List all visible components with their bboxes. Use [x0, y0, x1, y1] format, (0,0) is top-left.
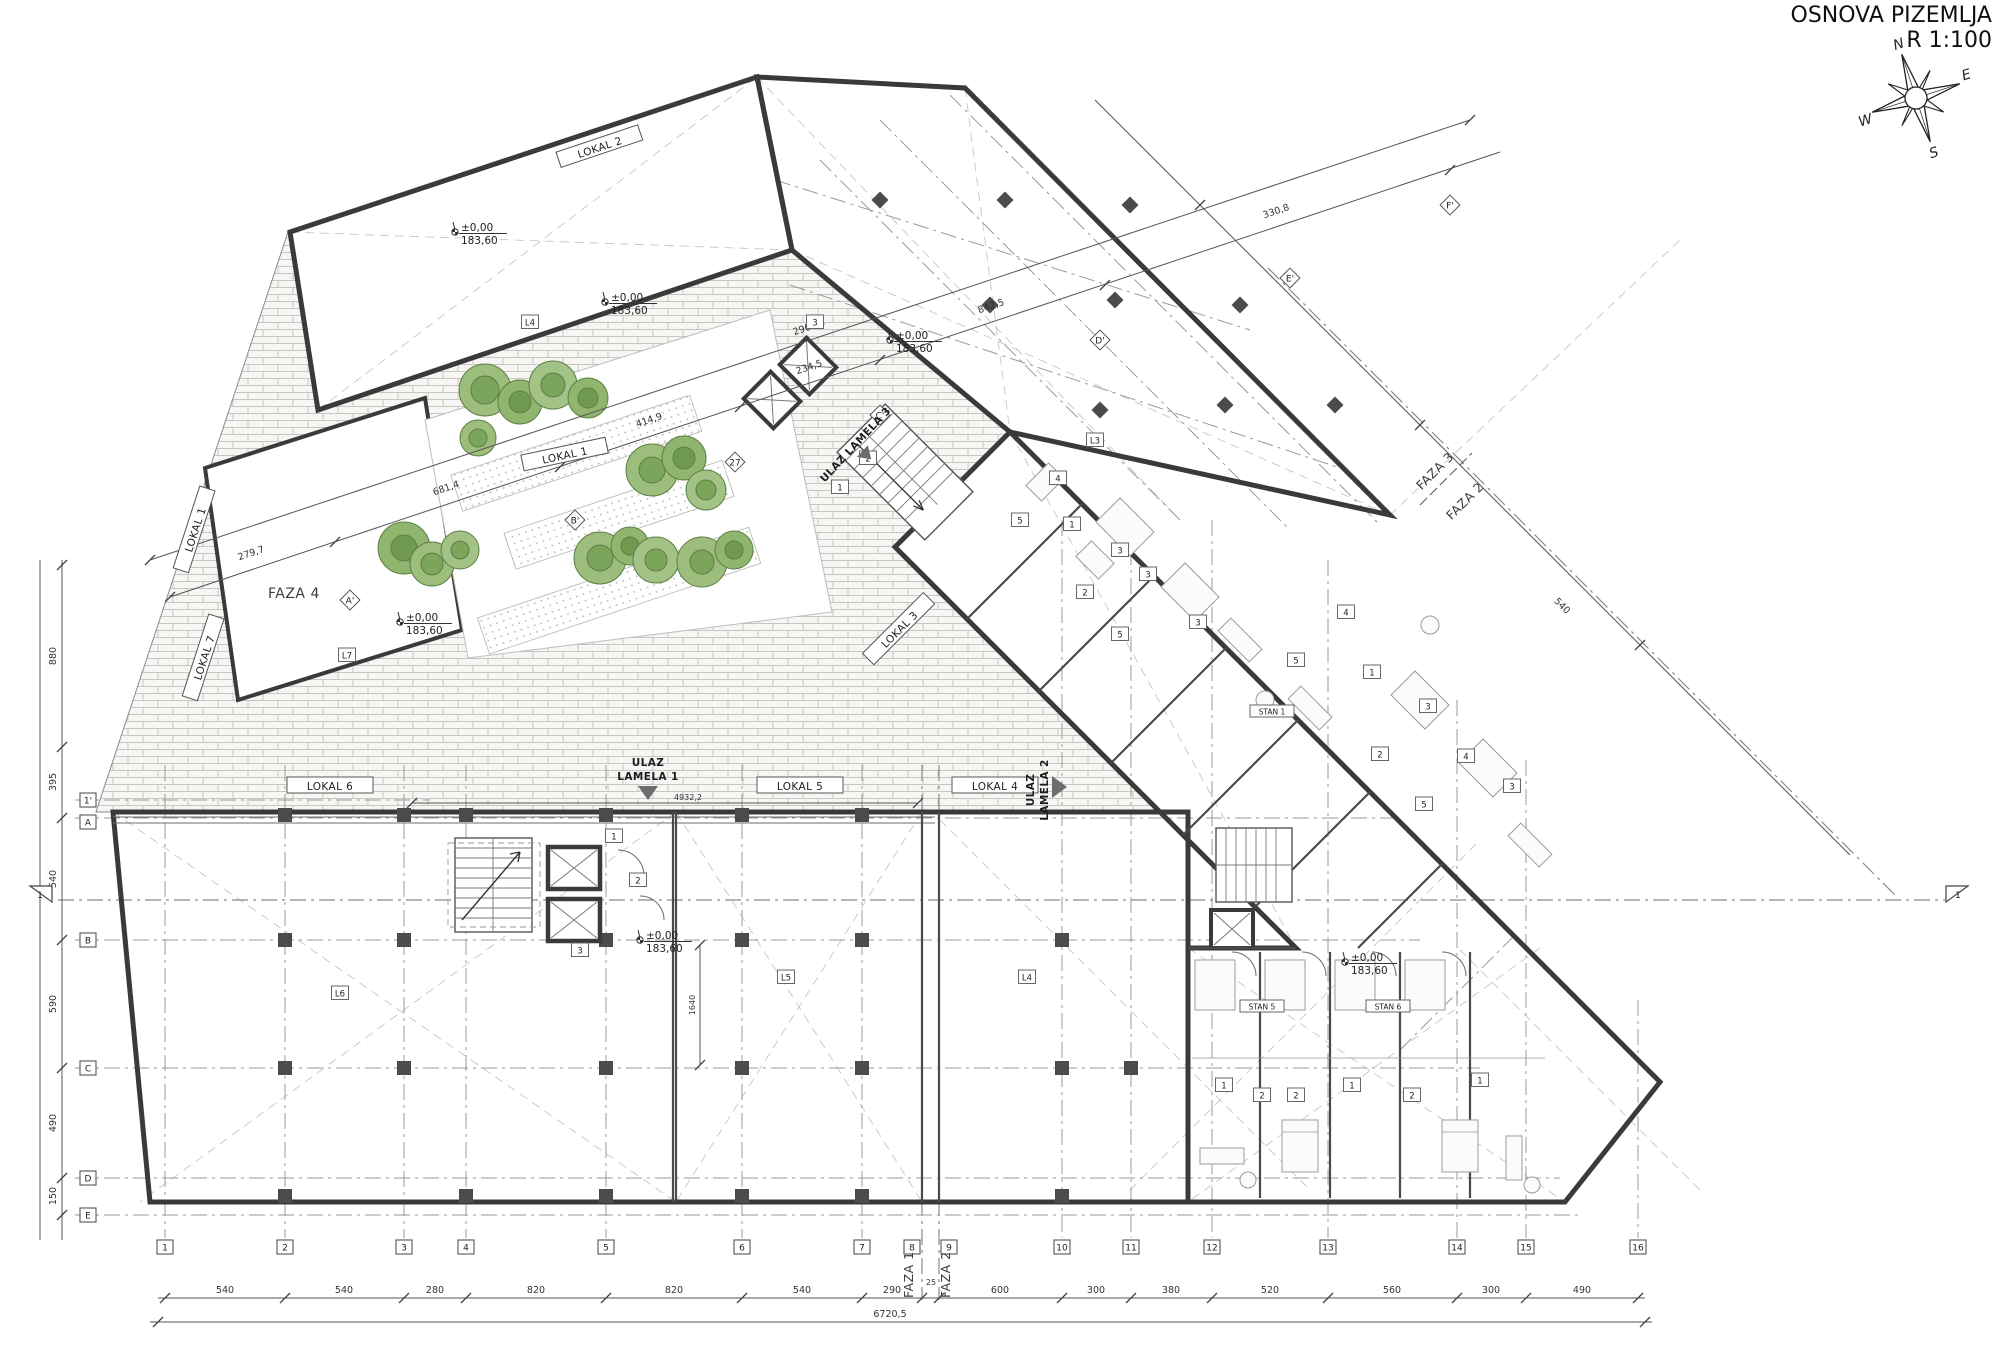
stan1-label: STAN 1	[1259, 708, 1286, 717]
grid-bubble-12: 12	[1206, 1244, 1217, 1254]
room-tag-faza4: L7	[342, 652, 352, 662]
ulaz1-line2: LAMELA 1	[617, 771, 678, 783]
elev3-abs: 183,60	[896, 343, 933, 355]
dim-bottom-5: 540	[793, 1285, 811, 1296]
dim-bottom-10: 380	[1162, 1285, 1180, 1296]
dim-top-5: 330,8	[1262, 202, 1291, 221]
dim-interior: 1640	[688, 995, 697, 1015]
room-tag-upper-hall: L4	[525, 319, 535, 329]
faza2-top-label: FAZA 2	[1443, 479, 1487, 523]
ulaz1-line1: ULAZ	[632, 757, 665, 769]
dim-bottom-6: 290	[883, 1285, 901, 1296]
elev4-rel: ±0,00	[406, 612, 438, 624]
floor-plan-drawing: 540 540 280 820 820 540 290 25 600 300 3…	[0, 0, 2000, 1358]
diamond-bubble-6: F'	[1446, 202, 1454, 212]
tag-band-upper-1: 5	[1017, 517, 1022, 527]
tag-block-0: 1	[1221, 1082, 1226, 1092]
grid-bubble-10: 10	[1056, 1244, 1068, 1254]
dim-entry-width: 4932,2	[674, 793, 702, 802]
stan5-label: STAN 5	[1249, 1003, 1276, 1012]
dim-bottom-14: 490	[1573, 1285, 1591, 1296]
dim-bottom-4: 820	[665, 1285, 683, 1296]
dim-bottom-11: 520	[1261, 1285, 1279, 1296]
apartment-wing-outline	[895, 432, 1660, 1202]
tag-band-mid-7: 5	[1421, 801, 1426, 811]
tag-block-5: 1	[1477, 1077, 1482, 1087]
lokal6-label: LOKAL 6	[307, 781, 353, 793]
elev4-abs: 183,60	[406, 625, 443, 637]
tag-band-mid-1: 5	[1293, 657, 1298, 667]
section-marker-left: 1	[37, 891, 43, 901]
tag-band-mid-4: 2	[1377, 751, 1382, 761]
grid-bubble-6: 6	[739, 1244, 745, 1254]
dim-bottom-7: 25	[926, 1278, 936, 1287]
grid-bubble-2: 2	[282, 1244, 288, 1254]
drawing-title: OSNOVA PIZEMLJA	[1791, 3, 1992, 28]
grid-bubble-1: 1	[162, 1244, 168, 1254]
compass-n: N	[1891, 35, 1906, 54]
elevator-3	[1211, 910, 1253, 948]
elev2-rel: ±0,00	[611, 292, 643, 304]
diamond-bubble-5: E'	[1286, 275, 1294, 285]
section-marker-right: 1	[1955, 891, 1961, 901]
elevator-2	[548, 899, 600, 941]
grid-bubble-4: 4	[463, 1244, 469, 1254]
elev5-rel: ±0,00	[646, 930, 678, 942]
elev2-abs: 183,60	[611, 305, 648, 317]
dim-left-3: 590	[48, 995, 59, 1013]
grid-bubble-7: 7	[859, 1244, 865, 1254]
faza1-bottom-label: FAZA 1	[901, 1251, 916, 1298]
grid-bubble-16: 16	[1632, 1244, 1644, 1254]
dim-bottom-1: 540	[335, 1285, 353, 1296]
ulaz2-line2: LAMELA 2	[1039, 759, 1051, 820]
elev3-rel: ±0,00	[896, 330, 928, 342]
grid-bubble-B: B	[85, 937, 91, 947]
dim-left-4: 490	[48, 1114, 59, 1132]
tag-band-mid-2: 1	[1369, 669, 1374, 679]
core-mid	[448, 838, 664, 941]
dim-top-4: 842,5	[977, 297, 1006, 316]
dim-left-1: 395	[48, 773, 59, 791]
compass-w: W	[1856, 111, 1875, 131]
elev6-rel: ±0,00	[1351, 952, 1383, 964]
elev1-abs: 183,60	[461, 235, 498, 247]
diamond-bubble-2: 27	[729, 459, 740, 469]
compass-s: S	[1927, 144, 1941, 162]
tag-core-top-0: 3	[812, 319, 817, 329]
ulaz2-line1: ULAZ	[1025, 774, 1037, 807]
grid-bubble-13: 13	[1322, 1244, 1333, 1254]
phase-boundary-line	[1268, 268, 1898, 898]
tag-band-upper-4: 2	[1082, 589, 1087, 599]
diamond-bubble-4: D'	[1095, 337, 1104, 347]
dim-bottom-3: 820	[527, 1285, 545, 1296]
retail-building-outline	[113, 812, 1188, 1202]
grid-bubble-C: C	[85, 1065, 91, 1075]
dim-left-5: 150	[48, 1187, 59, 1205]
tag-band-upper-7: 3	[1195, 619, 1200, 629]
grid-bubble-14: 14	[1451, 1244, 1463, 1254]
tag-core-top-2: 1	[837, 484, 842, 494]
tag-block-2: 2	[1293, 1092, 1298, 1102]
room-tag-retail-left: L6	[335, 990, 345, 1000]
tag-band-upper-3: 3	[1117, 547, 1122, 557]
tag-block-3: 1	[1349, 1082, 1354, 1092]
tag-band-mid-3: 3	[1425, 703, 1430, 713]
elevator-1	[548, 847, 600, 889]
stan6-label: STAN 6	[1375, 1003, 1402, 1012]
room-tag-upper-right-hall: L3	[1090, 437, 1100, 447]
dim-left-2: 540	[48, 870, 59, 888]
elev1-rel: ±0,00	[461, 222, 493, 234]
grid-bubbles-left: 1' A B C D E	[80, 793, 96, 1222]
grid-bubble-A: A	[85, 819, 92, 829]
tag-band-mid-5: 4	[1463, 753, 1468, 763]
tag-core-mid-1: 2	[635, 877, 640, 887]
tag-band-upper-5: 3	[1145, 571, 1150, 581]
grid-bubble-5: 5	[603, 1244, 609, 1254]
room-tag-retail-right: L4	[1022, 974, 1032, 984]
diamond-bubble-1: B'	[571, 517, 580, 527]
dim-bottom-8: 600	[991, 1285, 1009, 1296]
diamond-bubble-0: A'	[346, 597, 355, 607]
dim-bottom-9: 300	[1087, 1285, 1105, 1296]
dim-bottom-total: 6720,5	[873, 1309, 906, 1320]
dim-bottom-0: 540	[216, 1285, 234, 1296]
tag-band-mid-6: 3	[1509, 783, 1514, 793]
tag-band-upper-6: 5	[1117, 631, 1122, 641]
elev6-abs: 183,60	[1351, 965, 1388, 977]
faza3-label: FAZA 3	[1413, 449, 1457, 493]
lokal4-label: LOKAL 4	[972, 781, 1018, 793]
grid-bubble-D: D	[85, 1175, 92, 1185]
lokal5-label: LOKAL 5	[777, 781, 823, 793]
floor-plan-page: 540 540 280 820 820 540 290 25 600 300 3…	[0, 0, 2000, 1358]
grid-bubble-1p: 1'	[84, 797, 92, 807]
tag-block-1: 2	[1259, 1092, 1264, 1102]
dim-bottom-13: 300	[1482, 1285, 1500, 1296]
grid-bubble-E: E	[85, 1212, 91, 1222]
grid-bubble-11: 11	[1125, 1244, 1136, 1254]
compass-e: E	[1960, 66, 1974, 84]
dim-right: 540	[1551, 596, 1572, 617]
elev5-abs: 183,60	[646, 943, 683, 955]
grid-bubble-15: 15	[1520, 1244, 1531, 1254]
dim-bottom-2: 280	[426, 1285, 444, 1296]
tag-core-mid-2: 3	[577, 947, 582, 957]
tag-band-upper-2: 1	[1069, 521, 1074, 531]
dim-bottom-12: 560	[1383, 1285, 1401, 1296]
tag-band-upper-0: 4	[1055, 475, 1060, 485]
grid-bubble-3: 3	[401, 1244, 407, 1254]
faza4-label: FAZA 4	[268, 586, 320, 602]
tag-core-mid-0: 1	[611, 833, 616, 843]
title-block: OSNOVA PIZEMLJA R 1:100	[1791, 3, 1992, 53]
compass-star-icon	[1858, 40, 1974, 156]
tag-block-4: 2	[1409, 1092, 1414, 1102]
tag-band-mid-0: 4	[1343, 609, 1348, 619]
room-tag-retail-mid: L5	[781, 974, 791, 984]
dim-left-0: 880	[48, 647, 59, 665]
drawing-scale: R 1:100	[1906, 28, 1992, 53]
faza2-bottom-label: FAZA 2	[938, 1251, 953, 1298]
